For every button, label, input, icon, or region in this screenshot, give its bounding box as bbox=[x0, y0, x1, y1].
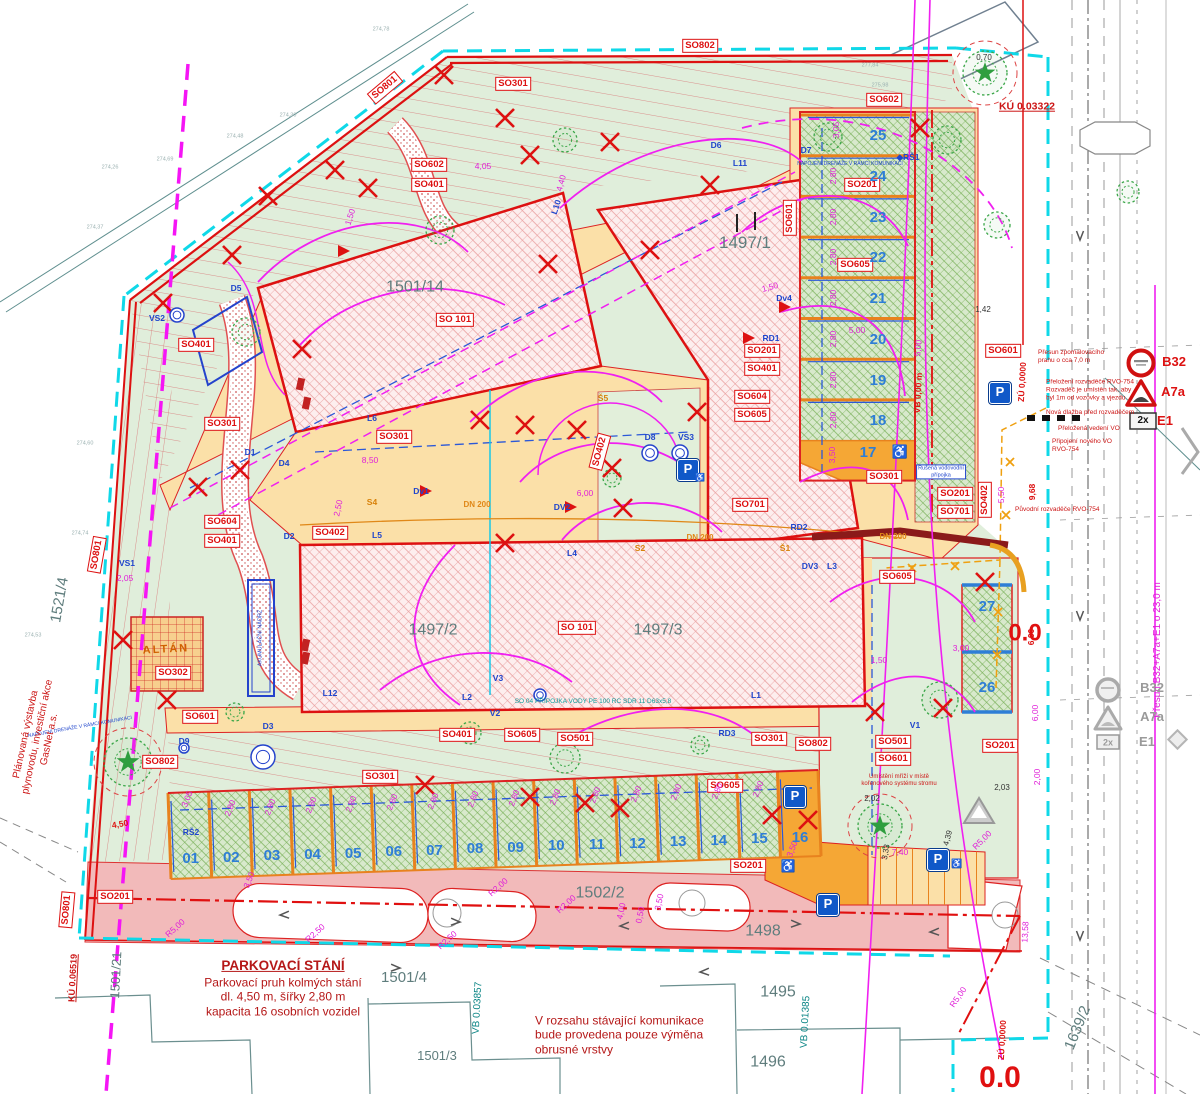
label-elev: 274,26 bbox=[102, 165, 119, 172]
label-pa: 1501/14 bbox=[386, 277, 444, 296]
label-dm: R5,00 bbox=[947, 985, 968, 1009]
label-code: L2 bbox=[462, 692, 472, 702]
label-so: SO605 bbox=[504, 728, 540, 742]
label-code: D6 bbox=[711, 140, 722, 150]
label-code: L6 bbox=[367, 413, 377, 423]
label-code: V3 bbox=[493, 673, 503, 683]
label-nr: Původní rozvaděče RVO-754 bbox=[1015, 506, 1099, 514]
label-nbx: Rušená vodovodní přípojka bbox=[916, 464, 966, 479]
label-code: D7 bbox=[801, 145, 812, 155]
label-pa: 1501/4 bbox=[381, 969, 427, 987]
stall-number: 15 bbox=[751, 830, 768, 848]
stall-dim: 2,80 bbox=[262, 797, 278, 816]
label-dm: R2,50 bbox=[435, 929, 459, 952]
label-elev: 277,84 bbox=[862, 63, 879, 70]
label-pa: 1496 bbox=[750, 1052, 786, 1071]
label-code: L1 bbox=[751, 690, 761, 700]
label-code: V2 bbox=[490, 708, 500, 718]
label-pa: 1497/3 bbox=[634, 620, 683, 639]
label-elev: 274,30 bbox=[280, 113, 297, 120]
label-dr: ZÚ 0,0000 bbox=[996, 1020, 1008, 1060]
label-nr: Přeložená vedení VO bbox=[1058, 425, 1120, 433]
stall-dim: 2,80 bbox=[506, 788, 522, 807]
label-so: SO201 bbox=[937, 487, 973, 501]
stall-dim: 2,80 bbox=[425, 791, 441, 810]
label-do: DN 200 bbox=[686, 533, 713, 543]
stall-dim: 2,80 bbox=[465, 790, 481, 809]
label-code: RD2 bbox=[790, 522, 807, 532]
wheelchair-icon: ♿ bbox=[951, 859, 962, 870]
label-dm: 4,05 bbox=[475, 161, 492, 171]
label-so: SO701 bbox=[937, 505, 973, 519]
label-so: SO601 bbox=[182, 710, 218, 724]
label-dm: 5,00 bbox=[912, 339, 924, 356]
label-so: SO602 bbox=[411, 158, 447, 172]
parking-sign-icon: P bbox=[784, 786, 806, 808]
parking-sign-icon: P bbox=[927, 849, 949, 871]
label-ku: KÚ 0.03322 bbox=[999, 101, 1055, 114]
label-dm: R2,00 bbox=[554, 893, 578, 916]
label-elev: 274,48 bbox=[227, 134, 244, 141]
label-ntl: PARKOVACÍ STÁNÍ bbox=[221, 958, 344, 974]
label-so: SO802 bbox=[795, 737, 831, 751]
stall-number: 23 bbox=[870, 209, 887, 227]
label-so: SO802 bbox=[682, 39, 718, 53]
label-so: SO201 bbox=[97, 890, 133, 904]
stall-number: 03 bbox=[264, 847, 281, 865]
label-dm: R5,00 bbox=[970, 828, 993, 851]
stall-number: 01 bbox=[182, 850, 199, 868]
label-code: D1 bbox=[245, 447, 256, 457]
label-dm: 2,05 bbox=[117, 573, 134, 583]
stall-dim: 2,80 bbox=[828, 249, 838, 266]
label-dm: 0,50 bbox=[633, 906, 646, 924]
parking-sign-icon: P bbox=[677, 459, 699, 481]
label-dr: ZÚ 0,0000 bbox=[1016, 362, 1028, 402]
label-dm: 3,50 bbox=[827, 447, 837, 464]
label-dm: R5,00 bbox=[163, 917, 187, 940]
label-dm: 3,50 bbox=[784, 839, 800, 858]
stall-dim: 2,80 bbox=[384, 793, 400, 812]
label-pa: 1497/2 bbox=[409, 620, 458, 639]
stall-number: 06 bbox=[385, 843, 402, 861]
label-stn: 27 bbox=[979, 598, 996, 616]
label-so: SO601 bbox=[985, 344, 1021, 358]
label-so: SO601 bbox=[875, 752, 911, 766]
label-dm: 3,05 bbox=[831, 122, 841, 139]
label-elev: 274,78 bbox=[373, 27, 390, 34]
stall-dim: 2,80 bbox=[669, 783, 685, 802]
label-so: SO501 bbox=[557, 732, 593, 746]
label-so: SO701 bbox=[732, 498, 768, 512]
label-dk: 0,70 bbox=[976, 53, 992, 63]
label-so: SO 101 bbox=[436, 313, 474, 327]
label-sgG: B32 bbox=[1140, 680, 1164, 696]
label-code: D2 bbox=[284, 531, 295, 541]
stall-dim: 2,80 bbox=[828, 290, 838, 307]
label-codeo: Š5 bbox=[598, 393, 608, 403]
stall-number: 10 bbox=[548, 837, 565, 855]
stall-number: 07 bbox=[426, 842, 443, 860]
label-so: SO605 bbox=[707, 779, 743, 793]
label-dm: 3,05 bbox=[179, 789, 195, 808]
stall-dim: 2,80 bbox=[828, 331, 838, 348]
label-sgR: E1 bbox=[1157, 413, 1173, 429]
wheelchair-icon: ♿ bbox=[892, 444, 908, 460]
stall-number: 20 bbox=[870, 331, 887, 349]
label-dm: 3,50 bbox=[652, 893, 665, 911]
label-stn: 26 bbox=[979, 679, 996, 697]
label-so: SO605 bbox=[837, 258, 873, 272]
label-so: SO802 bbox=[142, 755, 178, 769]
stall-dim: 2,80 bbox=[828, 371, 838, 388]
label-dm: 5,00 bbox=[849, 325, 866, 335]
plan-labels: SO802SO801SO301SO602SO602SO401SO201SO601… bbox=[0, 0, 1200, 1094]
label-dr: 6,00 bbox=[1026, 629, 1036, 646]
label-dk: 1,42 bbox=[975, 305, 991, 315]
label-so: SO602 bbox=[866, 93, 902, 107]
stall-number: 21 bbox=[870, 290, 887, 308]
stall-number: 18 bbox=[870, 412, 887, 430]
label-dr: VB 0,00 m bbox=[912, 372, 924, 413]
label-dm: R2,00 bbox=[486, 876, 510, 899]
stall-dim: 2,80 bbox=[587, 786, 603, 805]
label-pa: 1501/21 bbox=[107, 951, 125, 999]
stall-dim: 2,80 bbox=[828, 208, 838, 225]
label-so: SO501 bbox=[875, 735, 911, 749]
label-dk: 2,02 bbox=[864, 794, 880, 804]
label-elev: 274,53 bbox=[25, 633, 42, 640]
label-code: RD1 bbox=[762, 333, 779, 343]
label-sgG: A7a bbox=[1140, 709, 1164, 725]
label-dm: 13,58 bbox=[1019, 921, 1030, 943]
label-so: SO301 bbox=[376, 430, 412, 444]
stall-number: 25 bbox=[870, 127, 887, 145]
label-so: SO302 bbox=[155, 666, 191, 680]
label-code: L11 bbox=[733, 158, 747, 168]
label-code: ◆RŠ1 bbox=[896, 152, 919, 162]
label-dr: 9,68 bbox=[1027, 484, 1037, 501]
stall-dim: 2,80 bbox=[303, 796, 319, 815]
label-so: SO201 bbox=[844, 178, 880, 192]
label-code: D8 bbox=[645, 432, 656, 442]
label-nrc: Umístění mříží v místě kořenového systém… bbox=[861, 774, 936, 788]
stall-number: 13 bbox=[670, 833, 687, 851]
stall-dim: 2,80 bbox=[547, 787, 563, 806]
label-elev: 274,69 bbox=[157, 157, 174, 164]
stall-number: 05 bbox=[345, 845, 362, 863]
stall-number: 14 bbox=[710, 832, 727, 850]
label-code: L3 bbox=[827, 561, 837, 571]
label-vb: VB 0.03857 bbox=[471, 982, 486, 1035]
label-so: SO401 bbox=[411, 178, 447, 192]
label-so: SO801 bbox=[58, 892, 75, 929]
label-so: SO401 bbox=[178, 338, 214, 352]
label-codeo: S2 bbox=[635, 543, 645, 553]
label-nr: Připojení nového VO RVO-754 bbox=[1052, 438, 1112, 454]
label-so: SO301 bbox=[751, 732, 787, 746]
label-so: SO604 bbox=[204, 515, 240, 529]
label-codeo: Š1 bbox=[780, 543, 790, 553]
label-alt: ALTÁN bbox=[142, 642, 189, 658]
label-so: SO601 bbox=[783, 200, 797, 236]
label-dm: 3,50 bbox=[241, 870, 257, 889]
label-dm: 6,00 bbox=[1030, 705, 1040, 722]
label-so: SO605 bbox=[879, 570, 915, 584]
label-code: RŠ2 bbox=[183, 827, 200, 837]
label-x2g: 2x bbox=[1103, 738, 1113, 749]
label-dm: 1,50 bbox=[761, 280, 780, 294]
label-code: D5 bbox=[231, 283, 242, 293]
label-pa: 1639/2 bbox=[1061, 1003, 1095, 1052]
label-so: SO201 bbox=[730, 859, 766, 873]
stall-dim: 2,80 bbox=[628, 784, 644, 803]
label-dm: 2,00 bbox=[1032, 769, 1042, 786]
label-code: VS1 bbox=[119, 558, 135, 568]
label-dm: 8,50 bbox=[362, 455, 379, 465]
label-elev: 274,60 bbox=[77, 441, 94, 448]
wheelchair-icon: ♿ bbox=[781, 859, 796, 873]
label-so: SO301 bbox=[495, 77, 531, 91]
label-so: SO301 bbox=[866, 470, 902, 484]
label-elev: 274,74 bbox=[72, 531, 89, 538]
stall-dim: 2,80 bbox=[828, 412, 838, 429]
label-dk: 4,39 bbox=[941, 829, 954, 847]
label-code: DV2 bbox=[554, 502, 571, 512]
label-dm: 6,00 bbox=[577, 488, 594, 498]
label-x2: 2x bbox=[1137, 415, 1148, 427]
stall-number: 08 bbox=[467, 840, 484, 858]
label-akum: AKUMULAČNÍ NÁDRŽ bbox=[258, 610, 265, 667]
label-nr: Nová dlažba před rozvaděčem bbox=[1046, 409, 1134, 417]
stall-number: 09 bbox=[507, 839, 524, 857]
label-nr: Přeložení rozvaděče RVO-754 Rozvaděč je … bbox=[1046, 378, 1134, 401]
stall-dim: 2,80 bbox=[828, 168, 838, 185]
label-dm: 4,40 bbox=[554, 174, 568, 193]
stall-number: 02 bbox=[223, 849, 240, 867]
label-so: SO402 bbox=[978, 482, 992, 518]
stall-number: 12 bbox=[629, 835, 646, 853]
label-pa: 1521/4 bbox=[47, 576, 73, 624]
label-nt: SO 04 PŘÍPOJKA VODY PE 100 RC SDR 11 D63… bbox=[515, 698, 672, 706]
label-do: DN 200 bbox=[463, 500, 490, 510]
label-big: 0.0 bbox=[1008, 620, 1041, 649]
label-so: SO801 bbox=[87, 536, 107, 574]
stall-number: 16 bbox=[792, 829, 809, 847]
label-dm: 1,50 bbox=[871, 655, 888, 665]
label-code: L10 bbox=[549, 198, 563, 215]
label-code: VS2 bbox=[149, 313, 165, 323]
label-nb: NAPOJENÍ DRENÁŽE V RÁMCI KOMUNIKACI bbox=[797, 161, 903, 167]
label-vb: VB 0.01385 bbox=[799, 996, 814, 1049]
label-so: SO301 bbox=[204, 417, 240, 431]
label-so: SO401 bbox=[204, 534, 240, 548]
label-so: SO 101 bbox=[558, 621, 596, 635]
parking-sign-icon: P bbox=[817, 894, 839, 916]
label-codeo: S4 bbox=[367, 497, 377, 507]
label-dm: 1,50 bbox=[343, 208, 358, 227]
stall-number: 22 bbox=[870, 249, 887, 267]
label-dk: 3,33 bbox=[880, 843, 892, 860]
label-code: D3 bbox=[263, 721, 274, 731]
stall-dim: 2,80 bbox=[709, 781, 725, 800]
label-dm: 5,50 bbox=[996, 487, 1006, 504]
stall-dim: 2,80 bbox=[222, 798, 238, 817]
label-so: SO605 bbox=[734, 408, 770, 422]
label-code: L4 bbox=[567, 548, 577, 558]
label-dm: 7,40 bbox=[892, 847, 909, 857]
label-so: SO401 bbox=[439, 728, 475, 742]
label-code: D9 bbox=[179, 736, 190, 746]
label-ntb: Parkovací pruh kolmých stání dl. 4,50 m,… bbox=[204, 975, 361, 1018]
label-so: SO201 bbox=[744, 344, 780, 358]
label-nr: Přesun zpomalovacího prahu o cca 7,0 m bbox=[1038, 349, 1104, 365]
label-sgR: B32 bbox=[1162, 354, 1186, 370]
label-sgG: E1 bbox=[1139, 734, 1155, 750]
label-dm: 4,00 bbox=[614, 902, 627, 920]
label-pa: 1497/1 bbox=[719, 233, 771, 253]
label-so: SO402 bbox=[312, 526, 348, 540]
label-code: Dv4 bbox=[776, 293, 792, 303]
label-gas: Plánovaná výstavba plynovodu, investiční… bbox=[8, 676, 67, 798]
stall-dim: 2,80 bbox=[344, 794, 360, 813]
stall-number: 11 bbox=[589, 836, 605, 854]
label-dm: 2,50 bbox=[331, 499, 344, 517]
stall-number: 17 bbox=[860, 444, 877, 462]
label-so: SO402 bbox=[588, 433, 611, 471]
label-dm: R2,50 bbox=[303, 922, 327, 945]
label-code: VS3 bbox=[678, 432, 694, 442]
label-so: SO301 bbox=[362, 770, 398, 784]
label-ku: KÚ 0.06519 bbox=[66, 954, 79, 1003]
stall-dim: 2,80 bbox=[750, 780, 766, 799]
label-dk: 2,03 bbox=[994, 783, 1010, 793]
label-so: SO801 bbox=[367, 71, 403, 105]
label-rn: V rozsahu stávající komunikace bude prov… bbox=[535, 1013, 704, 1056]
site-plan-canvas[interactable]: SO802SO801SO301SO602SO602SO401SO201SO601… bbox=[0, 0, 1200, 1094]
label-code: Dv1 bbox=[413, 486, 429, 496]
label-do: DN 200 bbox=[879, 532, 906, 542]
label-elev: 275,98 bbox=[872, 83, 889, 90]
label-code: D4 bbox=[279, 458, 290, 468]
label-so: SO201 bbox=[982, 739, 1018, 753]
stall-number: 19 bbox=[870, 372, 887, 390]
label-dm: 3,00 bbox=[953, 643, 970, 653]
label-sgR: A7a bbox=[1161, 384, 1185, 400]
label-elev: 274,37 bbox=[87, 225, 104, 232]
stall-number: 04 bbox=[304, 846, 321, 864]
label-big: 0.0 bbox=[979, 1060, 1021, 1094]
label-code: V1 bbox=[910, 720, 920, 730]
label-code: DV3 bbox=[802, 561, 819, 571]
label-code: RD3 bbox=[718, 728, 735, 738]
label-pa: 1498 bbox=[745, 921, 781, 940]
label-so: SO604 bbox=[734, 390, 770, 404]
parking-sign-icon: P bbox=[989, 382, 1011, 404]
label-dr: 4,50 bbox=[111, 818, 129, 831]
label-code: L12 bbox=[323, 688, 338, 698]
label-so: SO401 bbox=[744, 362, 780, 376]
label-pa: 1502/2 bbox=[576, 883, 625, 902]
label-code: L5 bbox=[372, 530, 382, 540]
label-nb: NAPOJENÍ DRENÁŽE V RÁMCI KOMUNIKACI bbox=[27, 715, 132, 739]
label-pa: 1501/3 bbox=[417, 1048, 457, 1064]
label-mg: Přesun B32+A7a+E1 o 23,0 m bbox=[1152, 582, 1164, 718]
stall-number: 24 bbox=[870, 168, 887, 186]
label-pa: 1495 bbox=[760, 982, 796, 1001]
